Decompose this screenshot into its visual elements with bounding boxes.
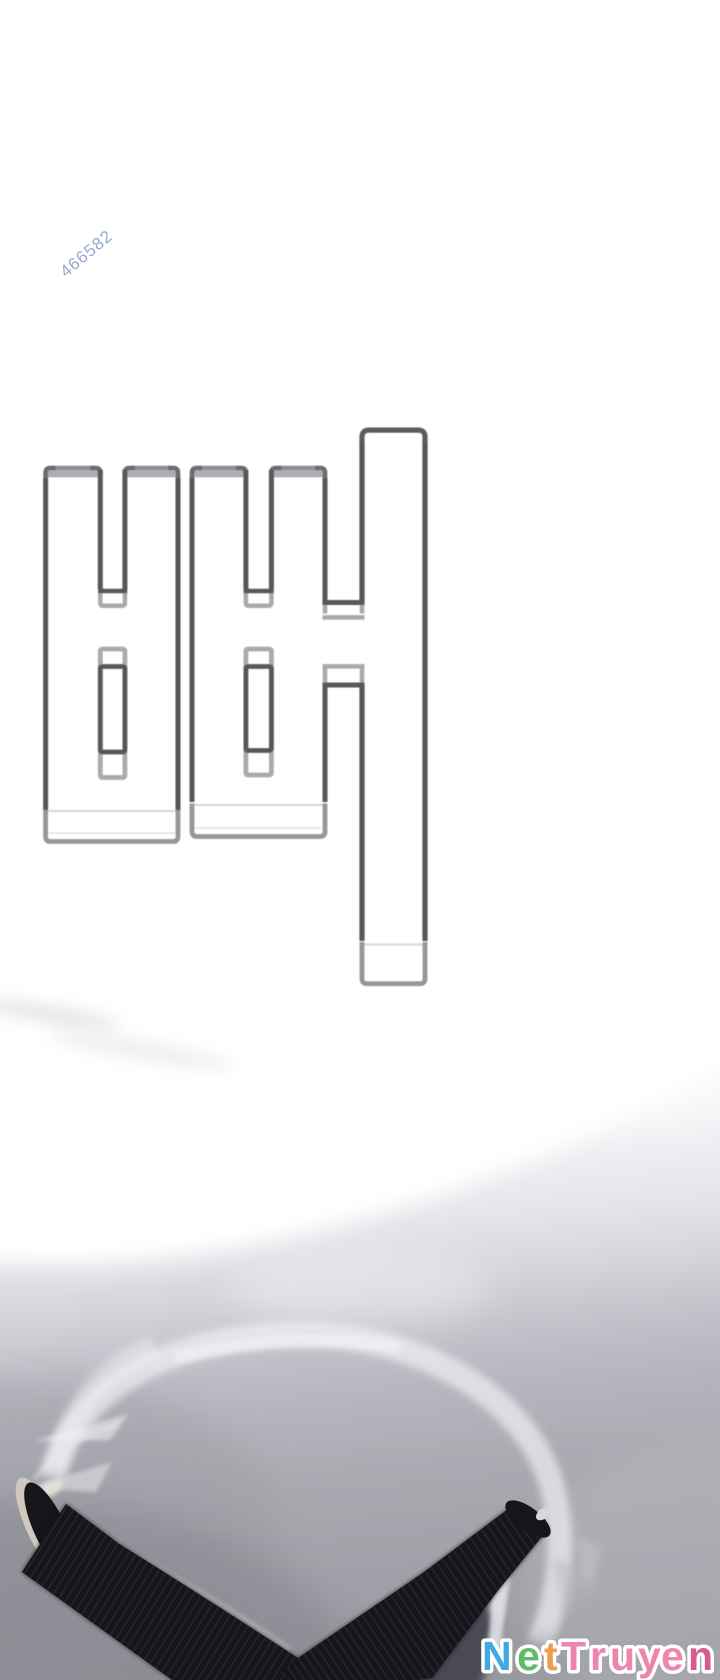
svg-text:n: n [688,1633,713,1679]
svg-text:N: N [482,1633,512,1679]
svg-text:u: u [610,1633,635,1679]
svg-text:y: y [638,1633,661,1679]
svg-text:T: T [561,1633,586,1679]
svg-text:e: e [661,1633,684,1679]
svg-text:e: e [517,1633,540,1679]
svg-text:r: r [590,1633,606,1679]
svg-text:t: t [544,1633,558,1679]
